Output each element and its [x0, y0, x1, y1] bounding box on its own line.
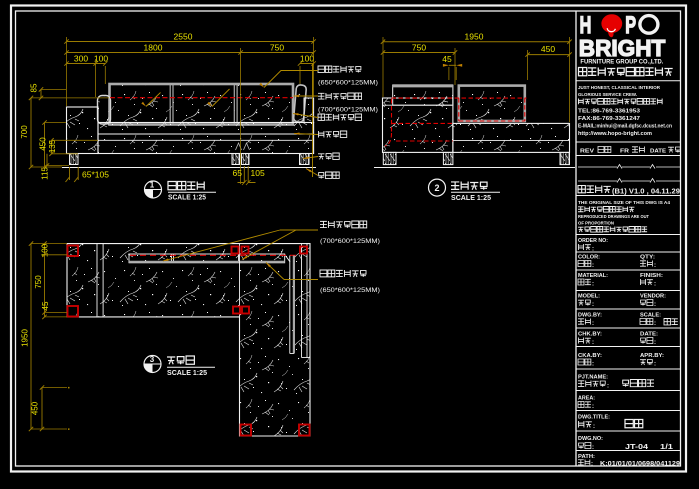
svg-text::: :: [654, 340, 656, 346]
svg-text:(B1) V1.0 , 04.11.29: (B1) V1.0 , 04.11.29: [612, 189, 680, 196]
svg-text:1950: 1950: [21, 329, 30, 347]
svg-text:COLOR:: COLOR:: [578, 255, 600, 261]
svg-text:DATE:: DATE:: [640, 332, 658, 338]
svg-text::: :: [607, 384, 609, 390]
svg-text:(700*600*125MM): (700*600*125MM): [320, 238, 380, 245]
svg-text:100: 100: [94, 54, 108, 64]
svg-text:GLORIOUS SERVICE CREW.: GLORIOUS SERVICE CREW.: [578, 92, 637, 98]
svg-text::: :: [592, 263, 594, 269]
svg-text:FAX:86-769-3361247: FAX:86-769-3361247: [578, 116, 640, 122]
svg-text:BRIGHT: BRIGHT: [579, 35, 666, 61]
svg-text::: :: [654, 362, 656, 368]
svg-text:300: 300: [74, 54, 88, 64]
svg-text:100: 100: [300, 54, 314, 64]
svg-text:REV: REV: [580, 149, 594, 155]
svg-text:JT-04: JT-04: [625, 442, 649, 451]
svg-text:(700*600*125MM): (700*600*125MM): [318, 107, 378, 114]
svg-text:750: 750: [270, 43, 284, 53]
svg-text::: :: [592, 321, 594, 327]
svg-text:DWG.TITLE:: DWG.TITLE:: [578, 415, 610, 421]
svg-text:(650*600*125MM): (650*600*125MM): [320, 287, 380, 294]
svg-text:1950: 1950: [465, 32, 484, 42]
svg-text:PATH:: PATH:: [578, 454, 595, 460]
svg-text:700: 700: [20, 125, 29, 139]
svg-text:45: 45: [442, 54, 452, 64]
svg-text:750: 750: [412, 43, 426, 53]
svg-text::: :: [654, 282, 656, 288]
svg-text::: :: [592, 362, 594, 368]
svg-text:105: 105: [251, 168, 265, 178]
svg-text:1800: 1800: [144, 43, 163, 53]
svg-text:SCALE:: SCALE:: [640, 313, 661, 319]
svg-text:115: 115: [41, 167, 50, 180]
svg-text:2: 2: [434, 183, 439, 193]
svg-text:FURNITURE GROUP CO.,LTD.: FURNITURE GROUP CO.,LTD.: [580, 60, 663, 66]
svg-text:E-MAIL:minhui@mail.dgfsc.dcust: E-MAIL:minhui@mail.dgfsc.dcust.net.cn: [578, 124, 672, 130]
svg-text:PJT.NAME:: PJT.NAME:: [578, 375, 608, 381]
svg-text:1: 1: [150, 181, 155, 190]
svg-text:85: 85: [30, 83, 39, 92]
svg-text:MODEL:: MODEL:: [578, 294, 600, 300]
svg-text:MATERIAL:: MATERIAL:: [578, 273, 608, 279]
svg-text::: :: [654, 302, 656, 308]
svg-text:SCALE 1:25: SCALE 1:25: [168, 193, 207, 202]
svg-text::: :: [654, 263, 656, 269]
svg-text:VENDOR:: VENDOR:: [640, 294, 666, 300]
svg-text:AREA:: AREA:: [578, 396, 595, 402]
svg-text:REPRODUCED DRAWINGS ARE OUT: REPRODUCED DRAWINGS ARE OUT: [578, 214, 649, 219]
svg-text:DWG.BY:: DWG.BY:: [578, 313, 602, 319]
svg-text::: :: [654, 321, 656, 327]
svg-text:3: 3: [150, 355, 155, 364]
svg-text:65*105: 65*105: [82, 170, 109, 180]
svg-text:ORDER NO:: ORDER NO:: [578, 238, 608, 244]
svg-text:1/1: 1/1: [660, 442, 673, 451]
svg-text:THE ORIGINAL SIZE OF THIS DWG: THE ORIGINAL SIZE OF THIS DWG IS A4: [578, 200, 670, 205]
svg-text:450: 450: [31, 401, 40, 415]
svg-text:APR.BY:: APR.BY:: [640, 353, 664, 359]
svg-text:750: 750: [34, 275, 43, 289]
svg-text:450: 450: [39, 137, 48, 151]
svg-text::: :: [592, 340, 594, 346]
svg-text:TEL:86-769-3361953: TEL:86-769-3361953: [578, 109, 640, 115]
svg-text:450: 450: [541, 44, 555, 54]
svg-text:CKA.BY:: CKA.BY:: [578, 353, 602, 359]
svg-text::: :: [591, 462, 593, 468]
svg-text:2550: 2550: [174, 32, 193, 42]
svg-text::: :: [592, 282, 594, 288]
svg-text::: :: [592, 302, 594, 308]
svg-text:SCALE 1:25: SCALE 1:25: [451, 193, 492, 202]
svg-text:DATE: DATE: [650, 149, 666, 155]
svg-text:(650*600*125MM): (650*600*125MM): [318, 80, 378, 87]
svg-text:OF PROPORTION: OF PROPORTION: [578, 221, 615, 226]
svg-text:QTY:: QTY:: [640, 255, 655, 261]
svg-text:JUST HONEST, CLASSICAL INTERIO: JUST HONEST, CLASSICAL INTERIOR: [578, 85, 660, 91]
svg-text:FINISH:: FINISH:: [640, 273, 663, 279]
svg-text:FR: FR: [620, 149, 629, 155]
svg-text:http://www.hopo-bright.com: http://www.hopo-bright.com: [578, 131, 652, 137]
svg-text::: :: [592, 404, 594, 410]
svg-text:K:01/01/01/0698/041129: K:01/01/01/0698/041129: [600, 462, 681, 468]
svg-text::: :: [593, 424, 595, 430]
svg-text:65: 65: [233, 168, 243, 178]
svg-text:CHK.BY:: CHK.BY:: [578, 332, 602, 338]
svg-text:135: 135: [48, 139, 57, 153]
svg-text:45: 45: [41, 301, 50, 310]
svg-text:DWG.NO:: DWG.NO:: [578, 436, 603, 442]
svg-text:SCALE 1:25: SCALE 1:25: [167, 368, 208, 377]
